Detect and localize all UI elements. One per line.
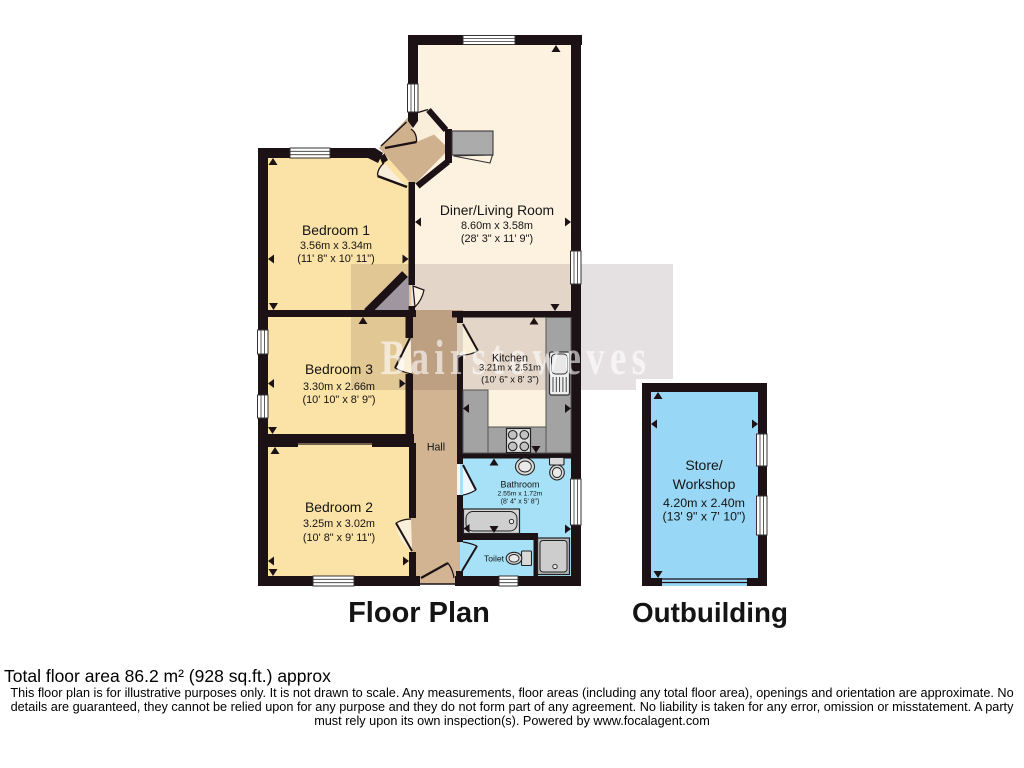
svg-text:2.55m x 1.72m: 2.55m x 1.72m (498, 491, 543, 498)
svg-text:Bedroom 1: Bedroom 1 (302, 222, 370, 238)
svg-text:3.21m x 2.51m: 3.21m x 2.51m (479, 362, 541, 373)
svg-text:3.56m x 3.34m: 3.56m x 3.34m (300, 240, 372, 252)
svg-text:(13' 9" x 7' 10"): (13' 9" x 7' 10") (662, 510, 745, 524)
svg-text:Outbuilding: Outbuilding (632, 597, 788, 628)
svg-text:(28' 3" x 11' 9"): (28' 3" x 11' 9") (461, 233, 533, 245)
svg-text:Bedroom 2: Bedroom 2 (305, 499, 373, 515)
svg-text:(10' 6" x 8' 3"): (10' 6" x 8' 3") (481, 373, 539, 384)
svg-text:Hall: Hall (427, 442, 445, 454)
svg-text:Diner/Living Room: Diner/Living Room (440, 202, 554, 218)
svg-text:Store/: Store/ (685, 457, 722, 473)
svg-text:Bedroom 3: Bedroom 3 (305, 361, 373, 377)
svg-text:Bathroom: Bathroom (500, 480, 539, 490)
svg-text:Floor Plan: Floor Plan (348, 597, 490, 629)
svg-text:Workshop: Workshop (673, 476, 736, 492)
svg-text:(8' 4" x 5' 8"): (8' 4" x 5' 8") (501, 499, 540, 506)
svg-text:(10' 8" x 9' 11"): (10' 8" x 9' 11") (303, 532, 375, 544)
svg-text:Toilet: Toilet (484, 554, 505, 564)
svg-text:8.60m x 3.58m: 8.60m x 3.58m (461, 220, 533, 232)
svg-text:(11' 8" x 10' 11"): (11' 8" x 10' 11") (297, 253, 374, 265)
svg-text:3.25m x 3.02m: 3.25m x 3.02m (303, 518, 375, 530)
svg-text:4.20m x 2.40m: 4.20m x 2.40m (663, 496, 745, 510)
svg-text:3.30m x 2.66m: 3.30m x 2.66m (303, 381, 375, 393)
svg-text:(10' 10" x 8' 9"): (10' 10" x 8' 9") (302, 394, 375, 406)
